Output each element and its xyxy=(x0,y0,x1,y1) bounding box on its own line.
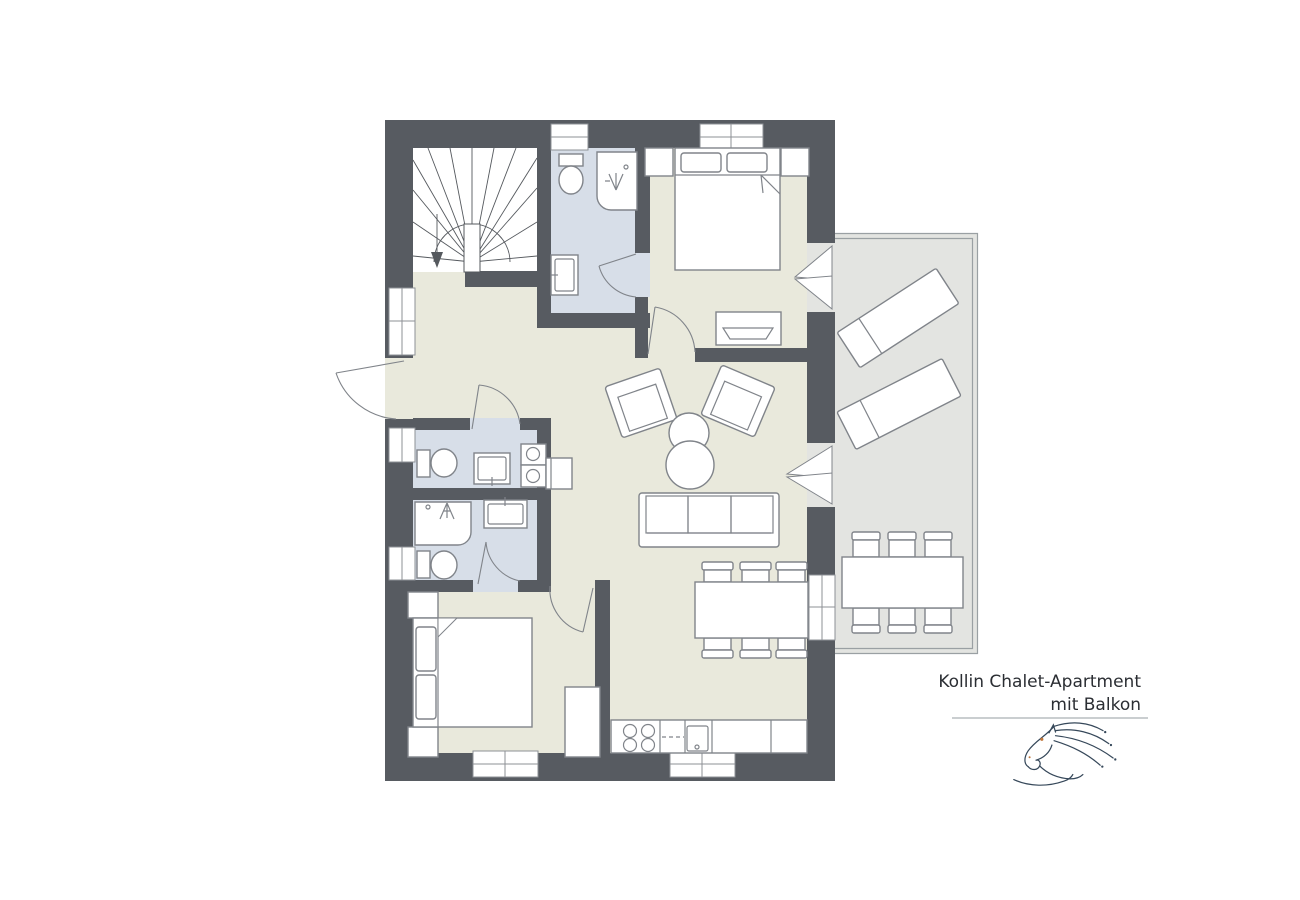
shower xyxy=(597,152,637,210)
hall-cabinet xyxy=(546,458,572,489)
outdoor-chair-seat xyxy=(853,540,879,557)
double-bed xyxy=(413,618,532,727)
pillow xyxy=(727,153,767,172)
horse-jaw xyxy=(1036,745,1052,760)
wardrobe xyxy=(565,687,600,757)
chair-back xyxy=(702,562,733,570)
outdoor-chair-back xyxy=(888,625,916,633)
horse-mane-line xyxy=(1054,741,1100,765)
outdoor-dining-set xyxy=(842,532,963,633)
pillow xyxy=(681,153,721,172)
outdoor-chair-back xyxy=(924,532,952,540)
horse-mane-line xyxy=(1056,736,1114,758)
window-left-wc xyxy=(389,428,415,462)
washbasin xyxy=(474,453,510,486)
balcony xyxy=(835,234,978,655)
plan-title-line1: Kollin Chalet-Apartment xyxy=(938,672,1141,692)
horse-chest-swoosh xyxy=(1014,775,1073,786)
outdoor-table xyxy=(842,557,963,608)
shower xyxy=(415,502,471,545)
kitchen-counter xyxy=(611,720,807,753)
floorplan-page: Kollin Chalet-Apartment mit Balkon xyxy=(0,0,1300,900)
wall-bathroom-bottom-right xyxy=(518,580,551,592)
outdoor-chair-seat xyxy=(925,540,951,557)
outdoor-chair-back xyxy=(852,625,880,633)
kitchen xyxy=(611,720,807,753)
outdoor-chair-seat xyxy=(925,608,951,625)
outdoor-chair-seat xyxy=(889,540,915,557)
horse-eye xyxy=(1040,738,1043,741)
chair-seat xyxy=(778,638,805,650)
window-bottom-bedroom xyxy=(473,751,538,777)
wall-staircase-right xyxy=(537,148,551,313)
chair-seat xyxy=(704,638,731,650)
three-seat-sofa xyxy=(639,493,779,547)
wall-top xyxy=(385,120,835,148)
outdoor-chair-back xyxy=(888,532,916,540)
floorplan-canvas: Kollin Chalet-Apartment mit Balkon xyxy=(0,0,1300,900)
dining-table xyxy=(695,582,808,638)
washer xyxy=(521,444,546,465)
outdoor-chair-seat xyxy=(853,608,879,625)
chair-seat xyxy=(742,638,769,650)
double-bed xyxy=(675,148,780,270)
dining-area xyxy=(695,562,808,658)
wall-wc-top-left xyxy=(413,418,470,430)
window-top-bathroom xyxy=(551,124,588,150)
pillow xyxy=(416,675,436,719)
outdoor-chair-back xyxy=(852,532,880,540)
toilet xyxy=(559,154,583,194)
stair-newel-post xyxy=(464,224,480,272)
chair-back xyxy=(776,650,807,658)
nightstand xyxy=(408,592,438,618)
horse-logo xyxy=(1014,723,1117,785)
title-block: Kollin Chalet-Apartment mit Balkon xyxy=(938,672,1148,785)
wall-bathroom-bottom-left xyxy=(413,580,473,592)
toilet xyxy=(417,449,457,477)
horse-neck xyxy=(1040,766,1083,779)
window-left-stairs xyxy=(389,288,415,355)
washbasin xyxy=(551,255,578,295)
outdoor-chair-seat xyxy=(889,608,915,625)
plan-title-line2: mit Balkon xyxy=(1050,695,1141,715)
chair-back xyxy=(702,650,733,658)
window-bottom-kitchen xyxy=(670,751,735,777)
chair-seat xyxy=(742,570,769,582)
bathroom-door-threshold xyxy=(473,580,518,592)
chair-back xyxy=(776,562,807,570)
nightstand xyxy=(645,148,673,176)
bench xyxy=(716,312,781,345)
wall-bottom xyxy=(385,753,835,781)
nightstand xyxy=(781,148,809,176)
wc-door-threshold xyxy=(470,418,520,430)
upper-bathroom-door-threshold xyxy=(635,253,650,297)
horse-nostril xyxy=(1029,756,1031,758)
chair-seat xyxy=(704,570,731,582)
window-right-dining xyxy=(809,575,835,640)
pillow xyxy=(416,627,436,671)
chair-seat xyxy=(778,570,805,582)
wall-upper-bedroom-bottom xyxy=(695,348,807,362)
chair-back xyxy=(740,650,771,658)
window-top-bedroom xyxy=(700,124,763,150)
dryer xyxy=(521,465,546,487)
horse-muzzle xyxy=(1028,760,1040,769)
round-coffee-table xyxy=(666,441,714,489)
wall-staircase-bottom xyxy=(465,271,537,287)
chair-back xyxy=(740,562,771,570)
window-left-bathroom xyxy=(389,547,415,580)
washbasin xyxy=(484,497,527,528)
wall-upper-bathroom-bottom xyxy=(537,313,650,328)
nightstand xyxy=(408,727,438,757)
wall-wc-bath-divider xyxy=(413,488,537,500)
outdoor-chair-back xyxy=(924,625,952,633)
toilet xyxy=(417,551,457,579)
entrance-opening xyxy=(385,358,413,419)
